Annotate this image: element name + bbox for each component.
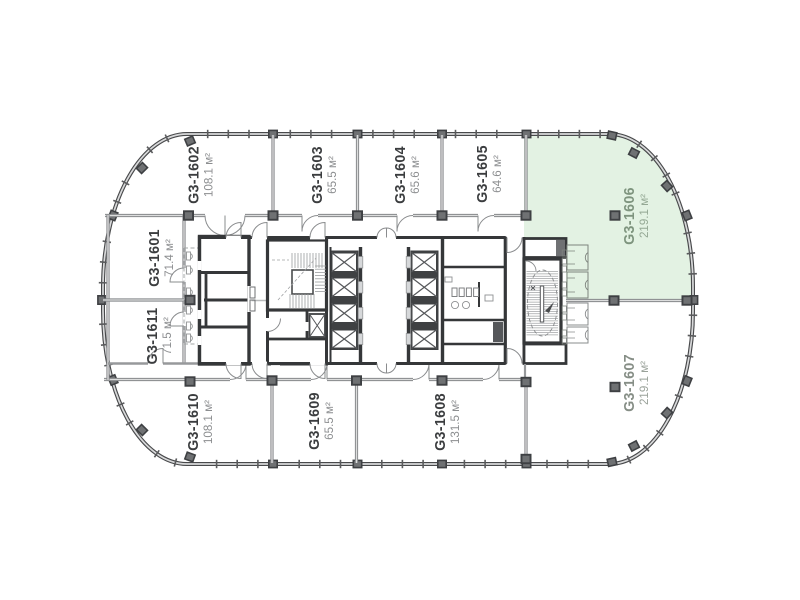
svg-text:G3-1602: G3-1602	[187, 146, 203, 204]
svg-text:G3-1609: G3-1609	[307, 392, 323, 450]
svg-text:G3-1604: G3-1604	[393, 146, 409, 204]
svg-text:G3-1607: G3-1607	[622, 354, 638, 412]
svg-text:71.5 м²: 71.5 м²	[161, 317, 174, 355]
svg-text:G3-1606: G3-1606	[622, 187, 638, 245]
svg-text:65.5 м²: 65.5 м²	[323, 402, 336, 440]
svg-text:G3-1608: G3-1608	[433, 393, 449, 451]
svg-text:G3-1610: G3-1610	[186, 393, 202, 451]
svg-text:219.1 м²: 219.1 м²	[638, 361, 651, 405]
svg-text:64.6 м²: 64.6 м²	[491, 155, 504, 193]
svg-text:219.1 м²: 219.1 м²	[638, 194, 651, 238]
svg-text:65.5 м²: 65.5 м²	[326, 156, 339, 194]
svg-text:71.4 м²: 71.4 м²	[163, 239, 176, 277]
svg-text:G3-1603: G3-1603	[310, 146, 326, 204]
svg-text:108.1 м²: 108.1 м²	[203, 153, 216, 197]
svg-text:G3-1601: G3-1601	[147, 229, 163, 287]
svg-text:G3-1611: G3-1611	[145, 308, 161, 365]
svg-text:G3-1605: G3-1605	[475, 145, 491, 203]
svg-text:65.6 м²: 65.6 м²	[409, 156, 422, 194]
svg-text:131.5 м²: 131.5 м²	[449, 400, 462, 444]
svg-text:108.1 м²: 108.1 м²	[202, 400, 215, 444]
